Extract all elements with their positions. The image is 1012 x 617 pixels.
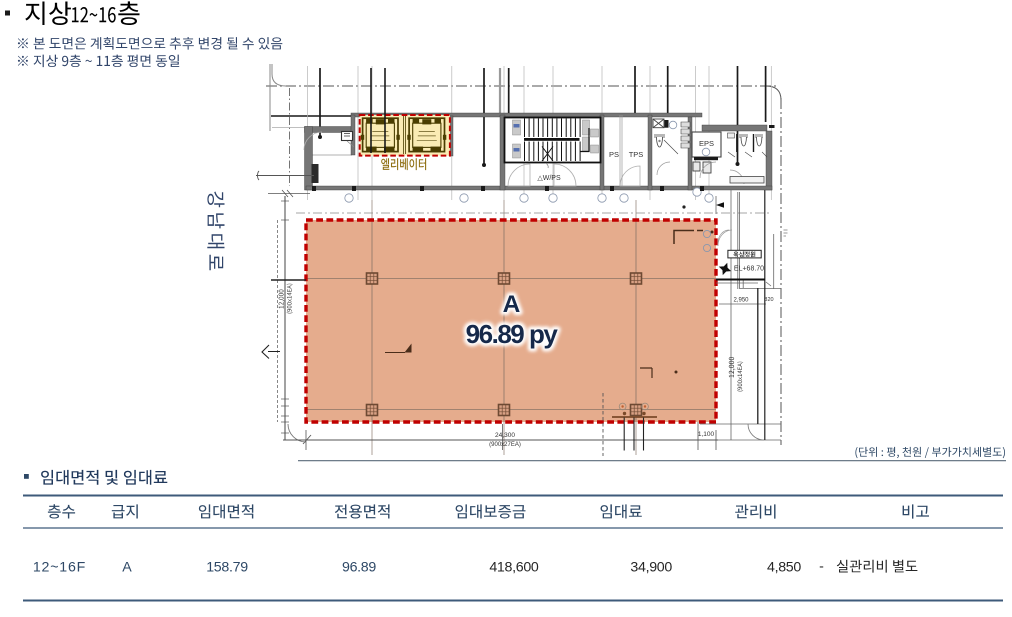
svg-text:34,900: 34,900: [630, 559, 672, 575]
svg-text:A: A: [503, 291, 521, 318]
svg-text:A: A: [122, 559, 132, 575]
svg-text:320: 320: [764, 297, 773, 303]
svg-text:12~16F: 12~16F: [33, 559, 86, 575]
svg-text:418,600: 418,600: [489, 559, 539, 575]
svg-text:1,100: 1,100: [698, 431, 715, 438]
svg-text:158.79: 158.79: [206, 559, 248, 575]
svg-text:△W/PS: △W/PS: [537, 175, 561, 182]
svg-text:TPS: TPS: [629, 150, 644, 159]
svg-text:PS: PS: [609, 150, 619, 159]
svg-text:96.89 py: 96.89 py: [466, 319, 559, 349]
svg-text:-: -: [819, 559, 824, 575]
svg-text:4,850: 4,850: [767, 559, 801, 575]
svg-text:EL+68.70: EL+68.70: [734, 265, 764, 272]
svg-text:24,300: 24,300: [495, 432, 515, 439]
svg-text:2,950: 2,950: [733, 298, 749, 304]
svg-text:(900x27EA): (900x27EA): [489, 442, 521, 448]
svg-text:EPS: EPS: [699, 139, 714, 148]
svg-text:96.89: 96.89: [342, 559, 376, 575]
